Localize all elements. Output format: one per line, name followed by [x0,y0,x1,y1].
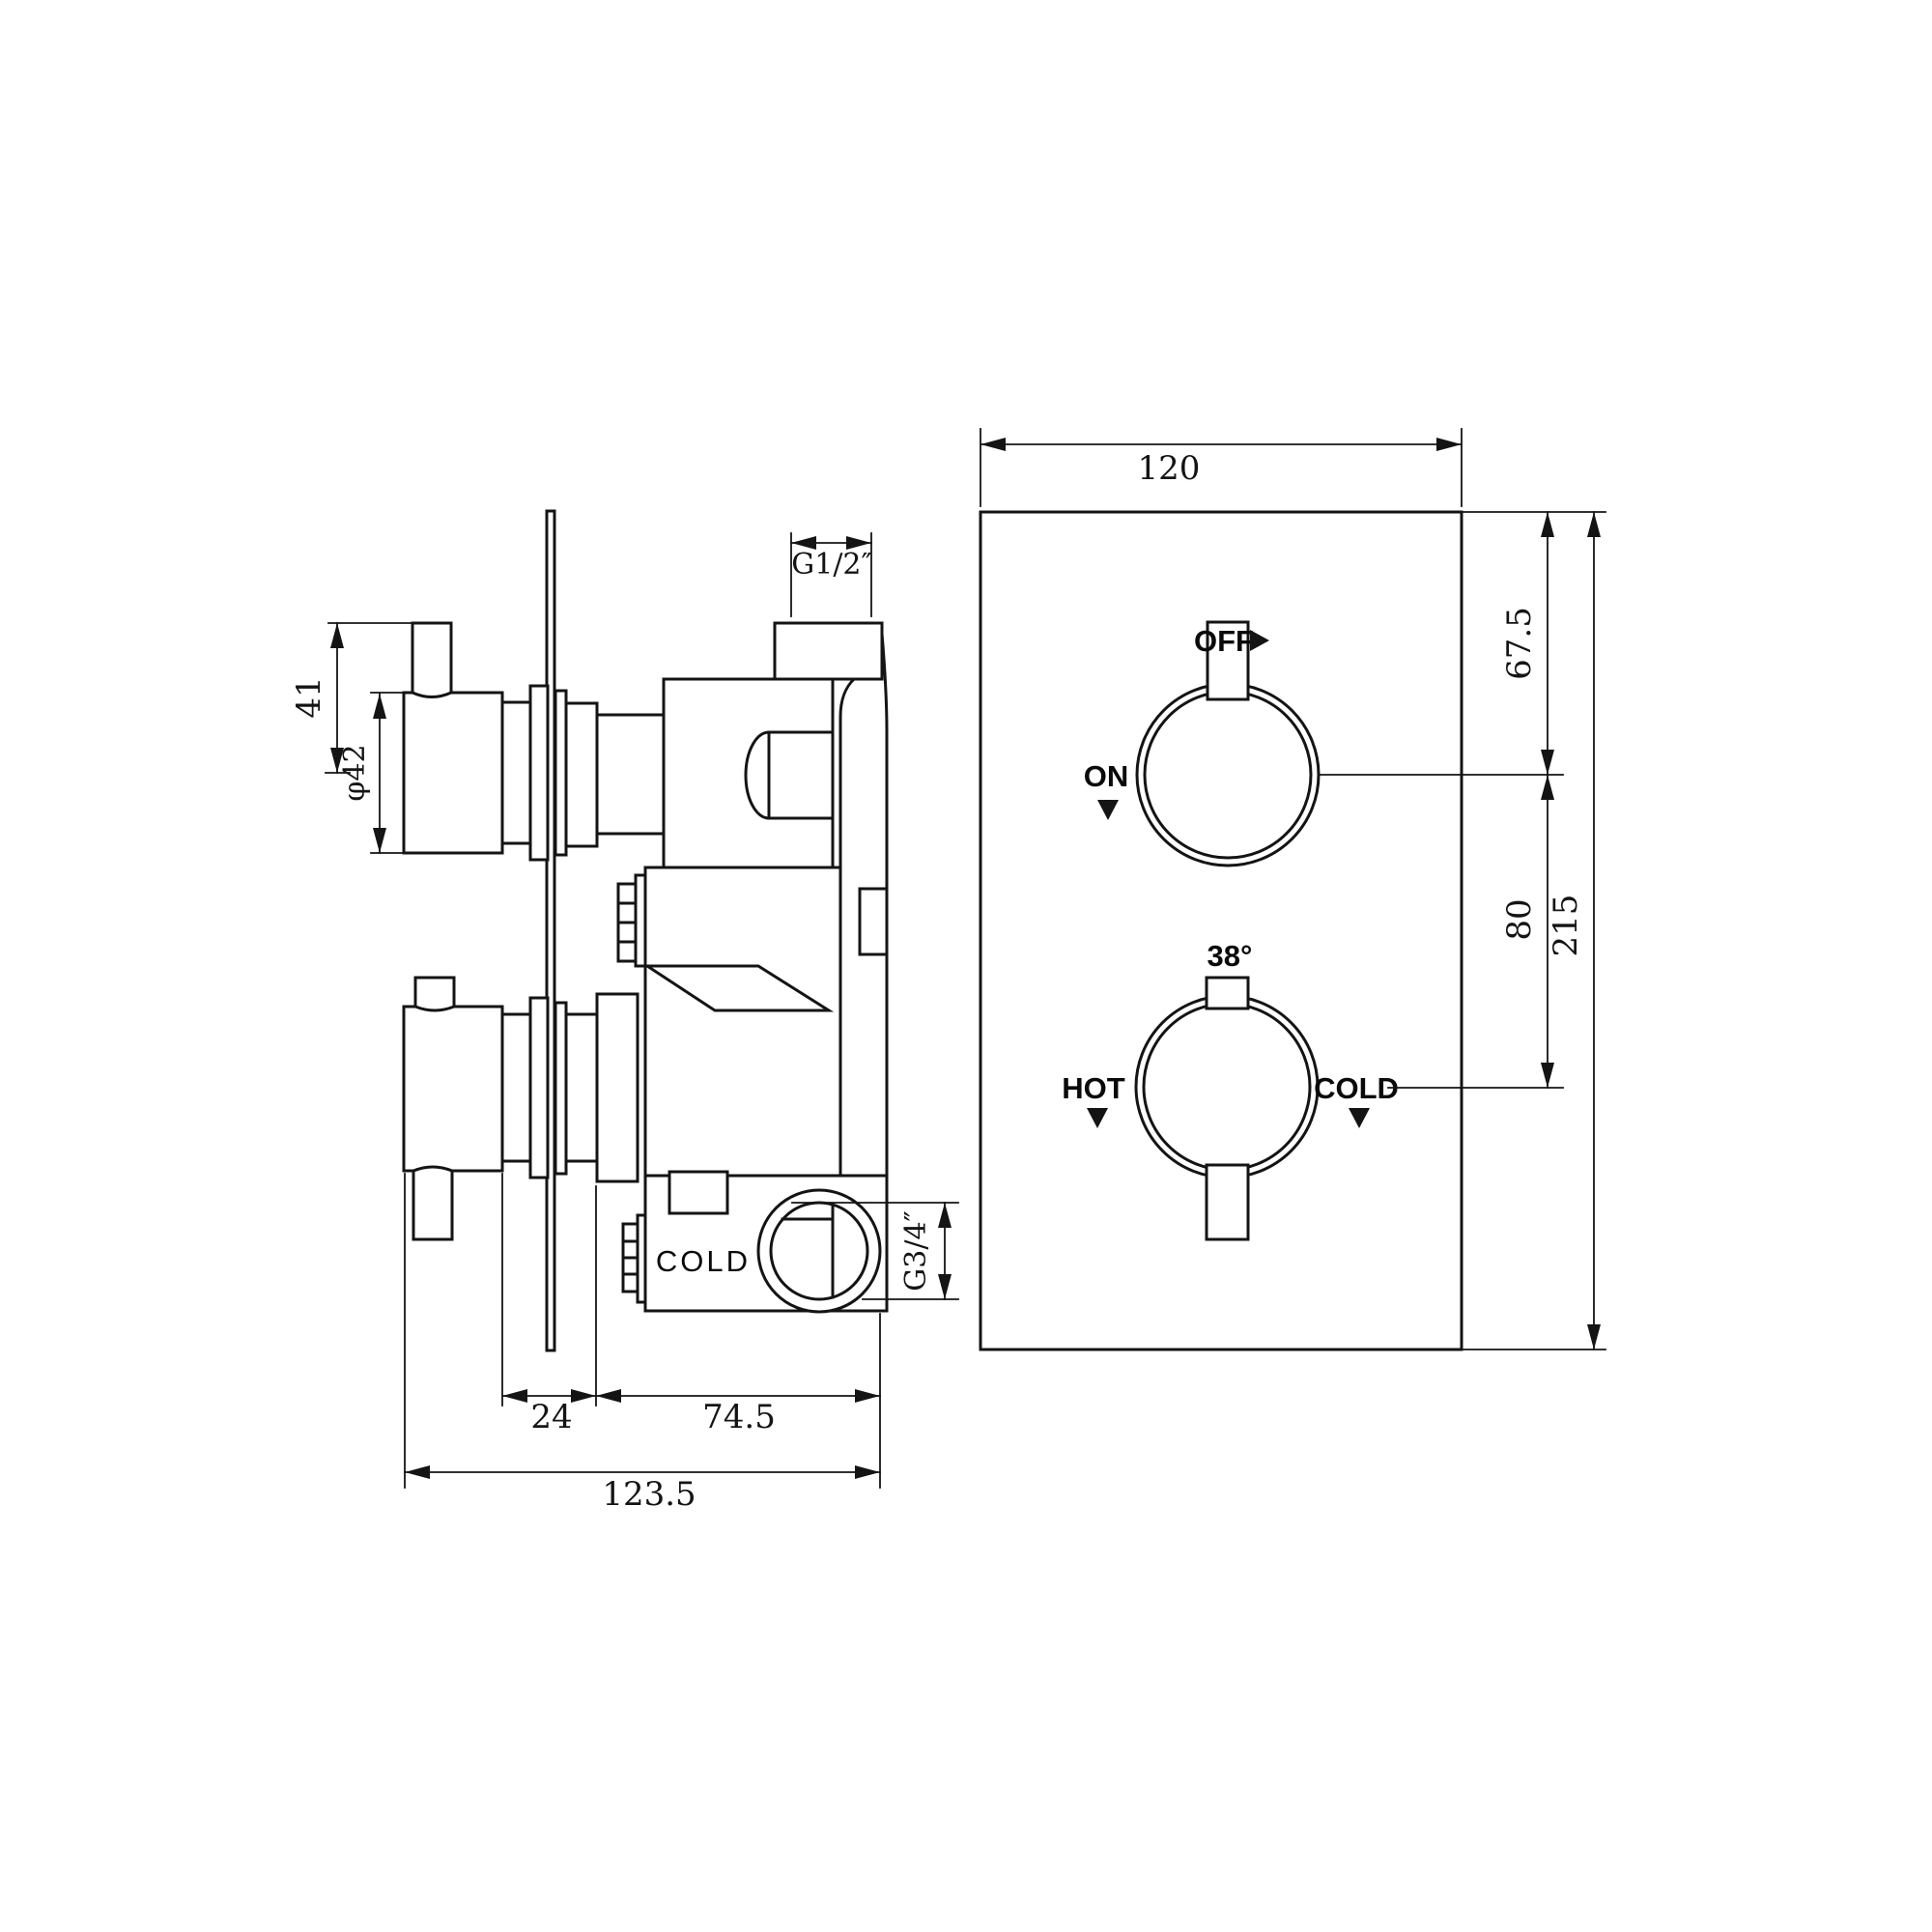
temp-lever [1207,1165,1248,1239]
dim-675-label: 67.5 [1500,607,1539,680]
front-view: OFF ON 38° HOT COLD 120 [980,429,1605,1350]
cold-inlet-block: COLD [623,1172,887,1312]
side-top-handle [404,623,664,860]
dim-120-label: 120 [1138,449,1201,488]
dim-plate-width: 120 [980,429,1462,506]
cold-inlet-screw [623,1215,645,1302]
dim-745-label: 74.5 [702,1398,776,1436]
cold-port-label: COLD [656,1244,751,1278]
dim-g34-label: G3/4″ [899,1210,933,1291]
outlet-stub [775,623,882,679]
dim-knob-diameter: φ42 [338,693,404,853]
dim-80-label: 80 [1500,898,1539,940]
technical-drawing-page: COLD 41 φ42 G1/2″ [0,0,1932,1932]
off-label: OFF [1194,624,1254,658]
dim-outlet-thread: G1/2″ [791,533,872,616]
side-view: COLD 41 φ42 G1/2″ [290,511,958,1514]
dim-right-chain: 67.5 80 215 [1462,512,1605,1350]
union-nut [669,1172,727,1213]
dim-215-label: 215 [1547,895,1585,957]
dim-41-label: 41 [290,676,328,718]
on-label: ON [1084,759,1129,793]
valve-drawing: COLD 41 φ42 G1/2″ [0,0,1932,1932]
side-valve-body [618,623,887,1176]
dim-dia42-label: φ42 [338,744,372,801]
dim-g12-label: G1/2″ [791,548,871,582]
dim-24-label: 24 [530,1398,572,1436]
cold-label: COLD [1314,1071,1399,1105]
hot-label: HOT [1062,1071,1125,1105]
temp-38-label: 38° [1207,939,1253,973]
wall-plate-edge [547,511,554,1350]
side-bottom-handle [404,978,638,1239]
hot-inlet-screw [618,875,645,966]
dim-1235-label: 123.5 [602,1475,696,1514]
temp-stub [1207,978,1248,1009]
